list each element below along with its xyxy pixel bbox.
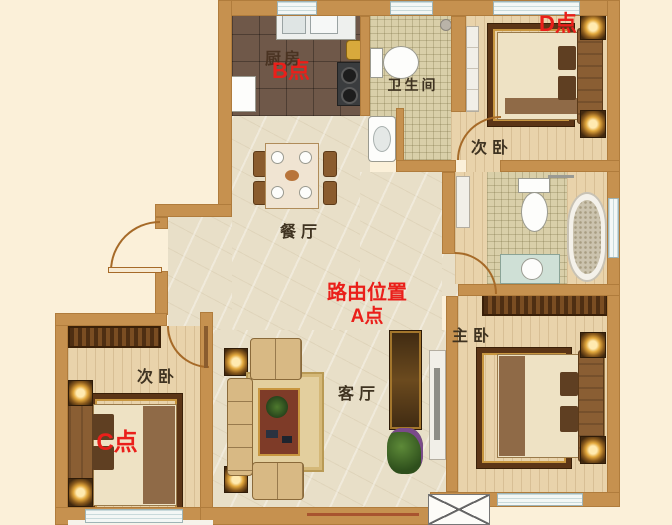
kitchen-sink-basin-right [310,14,338,34]
wall-bedroom-left-top [55,313,167,326]
master-nightstand-1 [580,332,606,358]
point-c-annotation: C点 [86,429,148,456]
router-location-annotation: 路由位置 A点 [312,281,422,329]
kitchen-window [277,1,317,15]
wall-bath-right [451,16,466,112]
master-bath-cabinet [456,176,470,228]
toilet-tank-top-bath [370,48,383,78]
wall-entry-step [155,204,232,217]
wall-kitchen-left [218,0,232,212]
coffee-table-remote [282,436,292,443]
toilet-bowl-top-bath [383,46,419,79]
bathtub-inner [573,200,601,274]
floor-plan: 厨房 卫生间 次卧 餐厅 客厅 主卧 次卧 B点 D点 C点 路由位置 A点 [0,0,672,525]
master-window [497,493,583,506]
living-lamp-1 [224,348,248,376]
coffee-table-flowers [266,396,288,418]
bathroom-window [390,1,433,15]
bedroom-top-right-label: 次卧 [462,140,522,158]
entry-door-leaf [108,267,162,273]
coffee-table-items [266,430,278,438]
stove-burner-bottom [341,87,358,104]
dining-centerpiece [285,170,299,181]
point-b-annotation: B点 [259,58,323,83]
sofa-main [227,378,253,476]
wall-bedroom-left-exterior [55,313,68,520]
bed-tr-blanket [505,98,579,114]
toilet-bowl-master [521,192,548,232]
wall-bath-nook [396,108,404,164]
vanity-sink [521,258,543,280]
bedroom-bl-door-leaf [204,326,208,368]
point-d-annotation: D点 [527,11,589,36]
wall-corridor-right [442,172,455,254]
bed-tr-pillow-1 [558,46,576,70]
master-bed-blanket [499,356,525,456]
dining-plate-2 [299,151,312,164]
living-room-label: 客厅 [329,386,389,404]
dining-chair-tr [323,151,337,177]
wall-entry-lower [155,271,168,315]
dining-room-label: 餐厅 [271,224,331,242]
tub-window [608,198,619,258]
master-pillow-1 [560,372,578,396]
router-location-line2: A点 [312,305,422,329]
router-location-line1: 路由位置 [312,281,422,305]
stove-burner-top [341,67,358,84]
dining-plate-1 [271,151,284,164]
bath-sink-bowl [373,126,391,152]
kitchen-sink-basin-left [282,14,306,34]
wall-bedroom-tr-bottom [500,160,620,172]
nightstand-tr-2 [580,110,606,138]
nightstand-bl-1 [68,380,93,406]
balcony-door-track [307,513,419,516]
dining-plate-3 [271,186,284,199]
wardrobe-bl [68,326,161,348]
wall-kitchen-bath [360,16,370,116]
bathroom-label: 卫生间 [380,78,446,96]
bedroom-bl-window [85,509,183,523]
tv-cabinet [389,330,422,430]
toilet-tank-master [518,178,550,193]
wardrobe-tr [466,26,479,112]
wall-bath-bottom [396,160,456,172]
master-bedroom-label: 主卧 [443,328,503,346]
flower-stand [387,428,423,474]
master-nightstand-2 [580,436,606,464]
sofa-chair-bottom [252,462,304,500]
master-pillow-2 [560,406,578,432]
dining-plate-4 [299,186,312,199]
towel-bar [548,175,574,178]
wall-master-left [446,296,458,492]
dining-chair-br [323,181,337,205]
bedroom-bottom-left-label: 次卧 [128,369,188,387]
entry-door-arc [110,221,160,271]
ac-platform [428,494,490,525]
nightstand-bl-2 [68,478,93,507]
bed-tr-pillow-2 [558,76,576,100]
sofa-chair-top [250,338,302,380]
tv-screen-line [434,368,440,440]
